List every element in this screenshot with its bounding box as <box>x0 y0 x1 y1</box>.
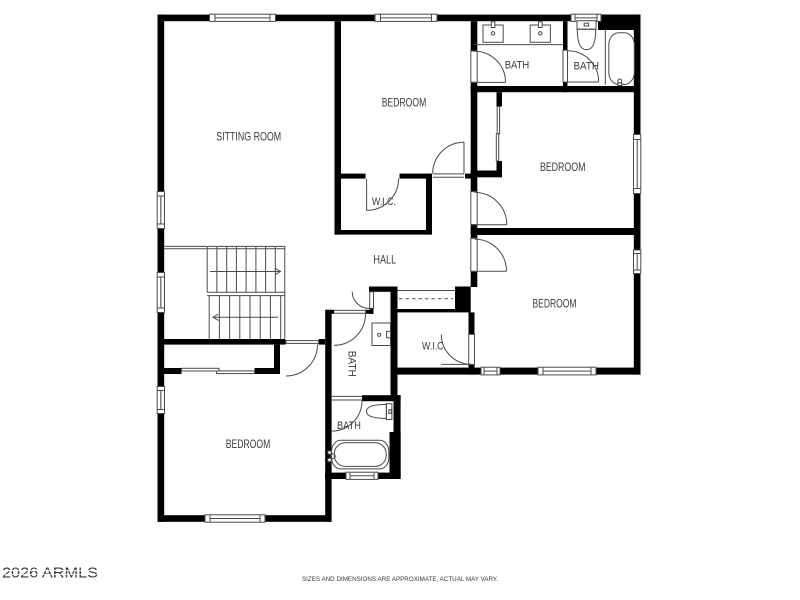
svg-text:BATH: BATH <box>346 351 358 377</box>
svg-text:BEDROOM: BEDROOM <box>540 162 586 174</box>
svg-text:BATH: BATH <box>505 59 530 71</box>
svg-text:HALL: HALL <box>373 252 396 266</box>
svg-text:BEDROOM: BEDROOM <box>533 299 577 311</box>
svg-text:SITTING ROOM: SITTING ROOM <box>216 130 281 144</box>
svg-text:2026 ARMLS: 2026 ARMLS <box>2 566 98 582</box>
svg-text:BEDROOM: BEDROOM <box>382 97 427 109</box>
svg-text:BEDROOM: BEDROOM <box>226 439 271 451</box>
svg-text:SIZES AND DIMENSIONS ARE APPRO: SIZES AND DIMENSIONS ARE APPROXIMATE, AC… <box>302 576 498 583</box>
